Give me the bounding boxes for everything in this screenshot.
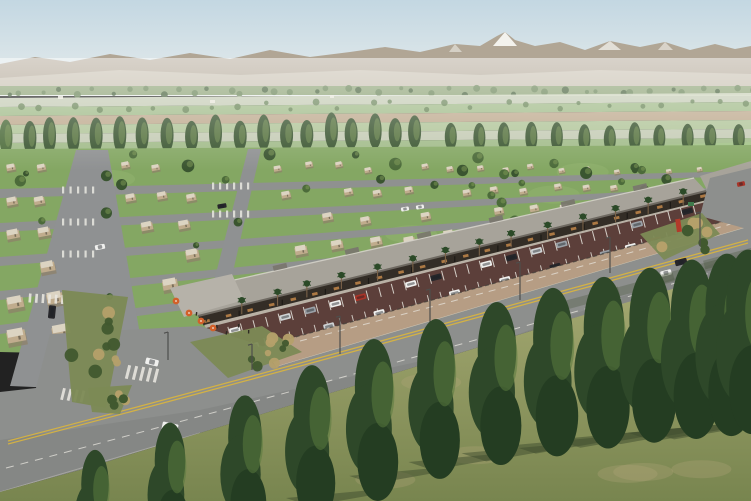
arcade-column — [627, 213, 628, 219]
shrub — [702, 227, 713, 238]
shrub — [105, 317, 113, 325]
shrub — [93, 349, 105, 361]
wayfinding-sign — [688, 202, 694, 206]
pedestrian — [248, 330, 249, 334]
shrub — [252, 361, 262, 371]
arcade-column — [454, 256, 455, 262]
shrub — [682, 225, 694, 237]
shrub — [88, 365, 102, 379]
arcade-column — [239, 311, 240, 317]
arcade-column — [540, 235, 541, 241]
aerial-rendering — [0, 0, 751, 501]
shrub — [265, 350, 271, 356]
car — [48, 305, 56, 319]
shrub — [119, 394, 128, 403]
atmospheric-haze — [0, 58, 751, 170]
arcade-column — [670, 202, 671, 208]
shrub — [112, 355, 119, 362]
pedestrian — [238, 324, 240, 328]
arcade-column — [325, 289, 326, 295]
shrub — [282, 340, 289, 347]
shrub — [656, 241, 667, 252]
shrub — [269, 358, 280, 369]
rendering-canvas — [0, 0, 751, 501]
arcade-column — [411, 267, 412, 273]
arcade-column — [282, 300, 283, 306]
arcade-column — [584, 224, 585, 230]
arcade-column — [497, 245, 498, 251]
arcade-column — [368, 278, 369, 284]
shrub — [266, 337, 276, 347]
shrub — [700, 245, 709, 254]
shrub — [107, 338, 120, 351]
shrub — [65, 348, 79, 362]
shrub — [107, 395, 117, 405]
shrub — [102, 306, 115, 319]
